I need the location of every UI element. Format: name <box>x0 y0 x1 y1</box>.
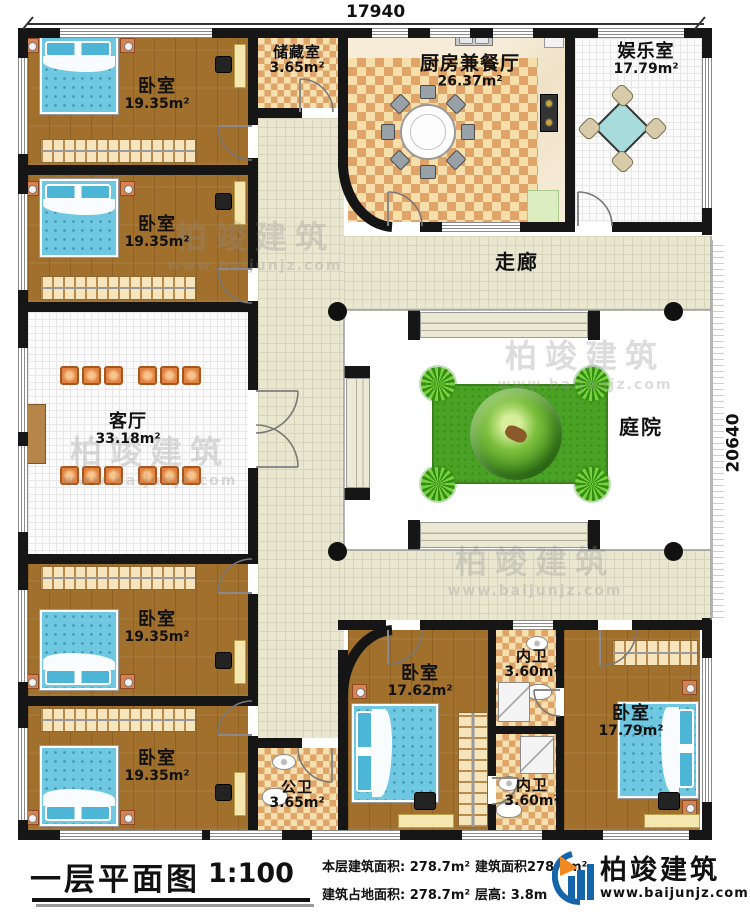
wall <box>553 620 598 630</box>
wall <box>18 554 258 564</box>
window <box>430 28 470 38</box>
room-label-ensuite-2: 内卫3.60m² <box>504 777 559 809</box>
bed <box>40 36 118 114</box>
wall <box>258 738 302 748</box>
closet <box>40 276 196 300</box>
sofa-chair <box>60 466 79 485</box>
window <box>312 830 400 840</box>
closet <box>458 712 488 828</box>
room-label-living: 客厅33.18m² <box>95 412 160 448</box>
room-label-bedroom-5: 卧室17.62m² <box>387 664 452 700</box>
dimension-line-top <box>28 23 704 25</box>
desk <box>644 814 700 828</box>
desk <box>398 814 454 828</box>
veranda-step <box>346 378 370 488</box>
bathroom-sink <box>272 754 296 770</box>
desk-chair <box>215 784 232 801</box>
veranda-step <box>420 522 588 548</box>
desk-chair <box>658 792 680 810</box>
baijun-logo-icon <box>552 850 596 908</box>
room-label-bedroom-4: 卧室19.35m² <box>124 749 189 785</box>
wall-stub <box>408 520 420 550</box>
stat-footprint-area: 建筑占地面积: 278.7m² <box>322 884 470 903</box>
veranda-step <box>420 312 588 338</box>
wall <box>18 696 258 706</box>
desk <box>234 44 246 88</box>
window <box>18 58 28 154</box>
bed <box>40 746 118 826</box>
nightstand <box>120 810 135 825</box>
wall <box>612 222 702 232</box>
palm-plant <box>421 367 455 401</box>
sofa-chair <box>60 366 79 385</box>
closet <box>612 640 698 666</box>
dining-chair <box>420 165 436 179</box>
window <box>462 830 542 840</box>
window <box>60 830 202 840</box>
wall <box>248 158 258 268</box>
palm-plant <box>575 467 609 501</box>
palm-plant <box>575 367 609 401</box>
window <box>603 830 689 840</box>
desk <box>234 181 246 225</box>
window <box>18 446 28 532</box>
courtyard-tree <box>470 388 562 480</box>
room-label-bedroom-1: 卧室19.35m² <box>124 77 189 113</box>
wall <box>496 726 556 734</box>
window <box>702 58 712 208</box>
wall <box>488 804 496 830</box>
wall <box>338 28 348 168</box>
room-label-courtyard: 庭院 <box>619 416 663 438</box>
nightstand <box>120 38 135 53</box>
window <box>493 28 533 38</box>
wall-stub <box>344 488 370 500</box>
wall <box>248 736 258 830</box>
wall-stub <box>588 310 600 340</box>
nightstand <box>682 800 697 815</box>
sofa-chair <box>82 466 101 485</box>
desk-chair <box>215 193 232 210</box>
desk-chair <box>414 792 436 810</box>
palm-plant <box>421 467 455 501</box>
bed <box>40 610 118 690</box>
room-label-entertainment: 娱乐室17.79m² <box>613 42 678 78</box>
window <box>702 658 712 802</box>
title-bar: 一层平面图 1:100 本层建筑面积: 278.7m² 建筑占地面积: 278.… <box>0 846 750 914</box>
column <box>664 302 683 321</box>
wall <box>18 165 258 175</box>
window <box>18 728 28 820</box>
wall <box>488 630 496 776</box>
room-label-public-bath: 公卫3.65m² <box>269 779 324 811</box>
floor-hallway <box>258 118 344 738</box>
sofa-chair <box>138 366 157 385</box>
desk <box>234 640 246 684</box>
shower <box>520 736 554 774</box>
window <box>18 590 28 682</box>
floor-corridor-bottom <box>344 550 712 620</box>
floor-plan-canvas: 17940 20640 <box>0 0 750 914</box>
wall-stub <box>344 366 370 378</box>
bed <box>352 704 438 802</box>
dining-chair <box>381 124 395 140</box>
stat-storey-height: 层高: 3.8m <box>475 884 547 903</box>
room-label-bedroom-2: 卧室19.35m² <box>124 215 189 251</box>
window-sill <box>712 240 724 618</box>
wall <box>632 620 712 630</box>
column <box>328 542 347 561</box>
sofa-chair <box>138 466 157 485</box>
window <box>210 830 282 840</box>
title-underline <box>32 898 310 902</box>
sofa-chair <box>160 466 179 485</box>
window <box>18 194 28 290</box>
dining-chair <box>461 124 475 140</box>
closet <box>40 566 196 590</box>
room-label-ensuite-1: 内卫3.60m² <box>504 648 559 680</box>
room-label-bedroom-6: 卧室17.79m² <box>598 704 663 740</box>
desk <box>234 772 246 816</box>
room-label-bedroom-3: 卧室19.35m² <box>124 610 189 646</box>
sofa-chair <box>182 466 201 485</box>
wall <box>338 620 386 630</box>
wall <box>556 716 564 830</box>
wall <box>338 650 348 830</box>
shower <box>498 682 530 722</box>
window <box>442 222 520 232</box>
nightstand <box>352 684 367 699</box>
sofa-chair <box>104 366 123 385</box>
door-mat <box>527 190 559 224</box>
plan-scale: 1:100 <box>208 858 294 889</box>
wall-stub <box>408 310 420 340</box>
window <box>60 28 212 38</box>
sofa-chair <box>82 366 101 385</box>
wall <box>420 222 442 232</box>
dining-table <box>400 104 456 160</box>
sofa-chair <box>104 466 123 485</box>
desk-chair <box>215 56 232 73</box>
wall <box>258 108 302 118</box>
wall <box>565 28 575 232</box>
column <box>328 302 347 321</box>
window <box>372 28 408 38</box>
nightstand <box>682 680 697 695</box>
window <box>18 348 28 432</box>
closet <box>40 708 196 732</box>
column <box>664 542 683 561</box>
nightstand <box>120 674 135 689</box>
plan-title: 一层平面图 <box>30 854 200 899</box>
closet <box>40 139 196 163</box>
wall <box>420 620 513 630</box>
room-label-storage: 储藏室3.65m² <box>269 44 324 76</box>
desk-chair <box>215 652 232 669</box>
wall <box>248 28 258 125</box>
dimension-right: 20640 <box>724 413 744 472</box>
title-underline-shadow <box>36 904 314 907</box>
brand-name: 柏竣建筑 <box>600 848 720 887</box>
sofa-chair <box>160 366 179 385</box>
sofa-chair <box>182 366 201 385</box>
nightstand <box>120 181 135 196</box>
wall <box>248 468 258 562</box>
wall <box>18 302 258 312</box>
room-label-kitchen: 厨房兼餐厅26.37m² <box>420 54 520 91</box>
stat-floor-area: 本层建筑面积: 278.7m² <box>322 856 470 875</box>
bed <box>40 179 118 257</box>
stove <box>540 94 558 132</box>
wall <box>248 594 258 702</box>
window <box>598 28 684 38</box>
wall-stub <box>588 520 600 550</box>
room-label-corridor: 走廊 <box>495 251 539 273</box>
window <box>513 620 553 630</box>
wall <box>248 301 258 390</box>
brand-url: www.baijunjz.com <box>600 886 749 901</box>
dimension-top: 17940 <box>346 2 405 22</box>
